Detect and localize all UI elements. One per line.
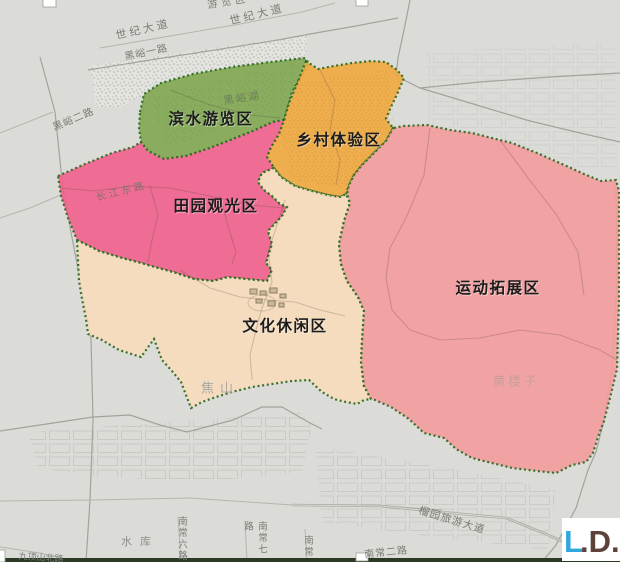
logo-letter-d: .D. — [580, 524, 620, 559]
road-label-nanchang-6: 南常六路 — [174, 516, 188, 562]
zone-label-rural-experience: 乡村体验区 — [296, 128, 381, 150]
zoning-map: 滨水游览区 乡村体验区 田园观光区 文化休闲区 运动拓展区 世纪大道 世纪大道 … — [0, 0, 620, 562]
road-label-jiudingshan-north: 九顶山北路 — [18, 549, 64, 562]
place-label-huanglouzi: 黄楼子 — [493, 371, 540, 390]
bottom-border-line — [0, 558, 620, 562]
road-label-nanchang-partial: 南常 — [300, 535, 314, 558]
brand-logo-graphic: L .D. — [562, 518, 620, 561]
zone-label-sports-expansion: 运动拓展区 — [455, 276, 540, 298]
zone-label-waterfront-tour: 滨水游览区 — [168, 107, 253, 129]
zone-label-pastoral-sightseeing: 田园观光区 — [173, 194, 258, 216]
place-label-reservoir: 水库 — [121, 533, 159, 549]
road-label-nanchang-7: 南常七路 — [240, 521, 268, 562]
brand-logo: L .D. — [562, 518, 620, 561]
zone-label-cultural-leisure: 文化休闲区 — [242, 314, 327, 336]
place-label-jiaoshan: 焦山 — [201, 378, 239, 397]
